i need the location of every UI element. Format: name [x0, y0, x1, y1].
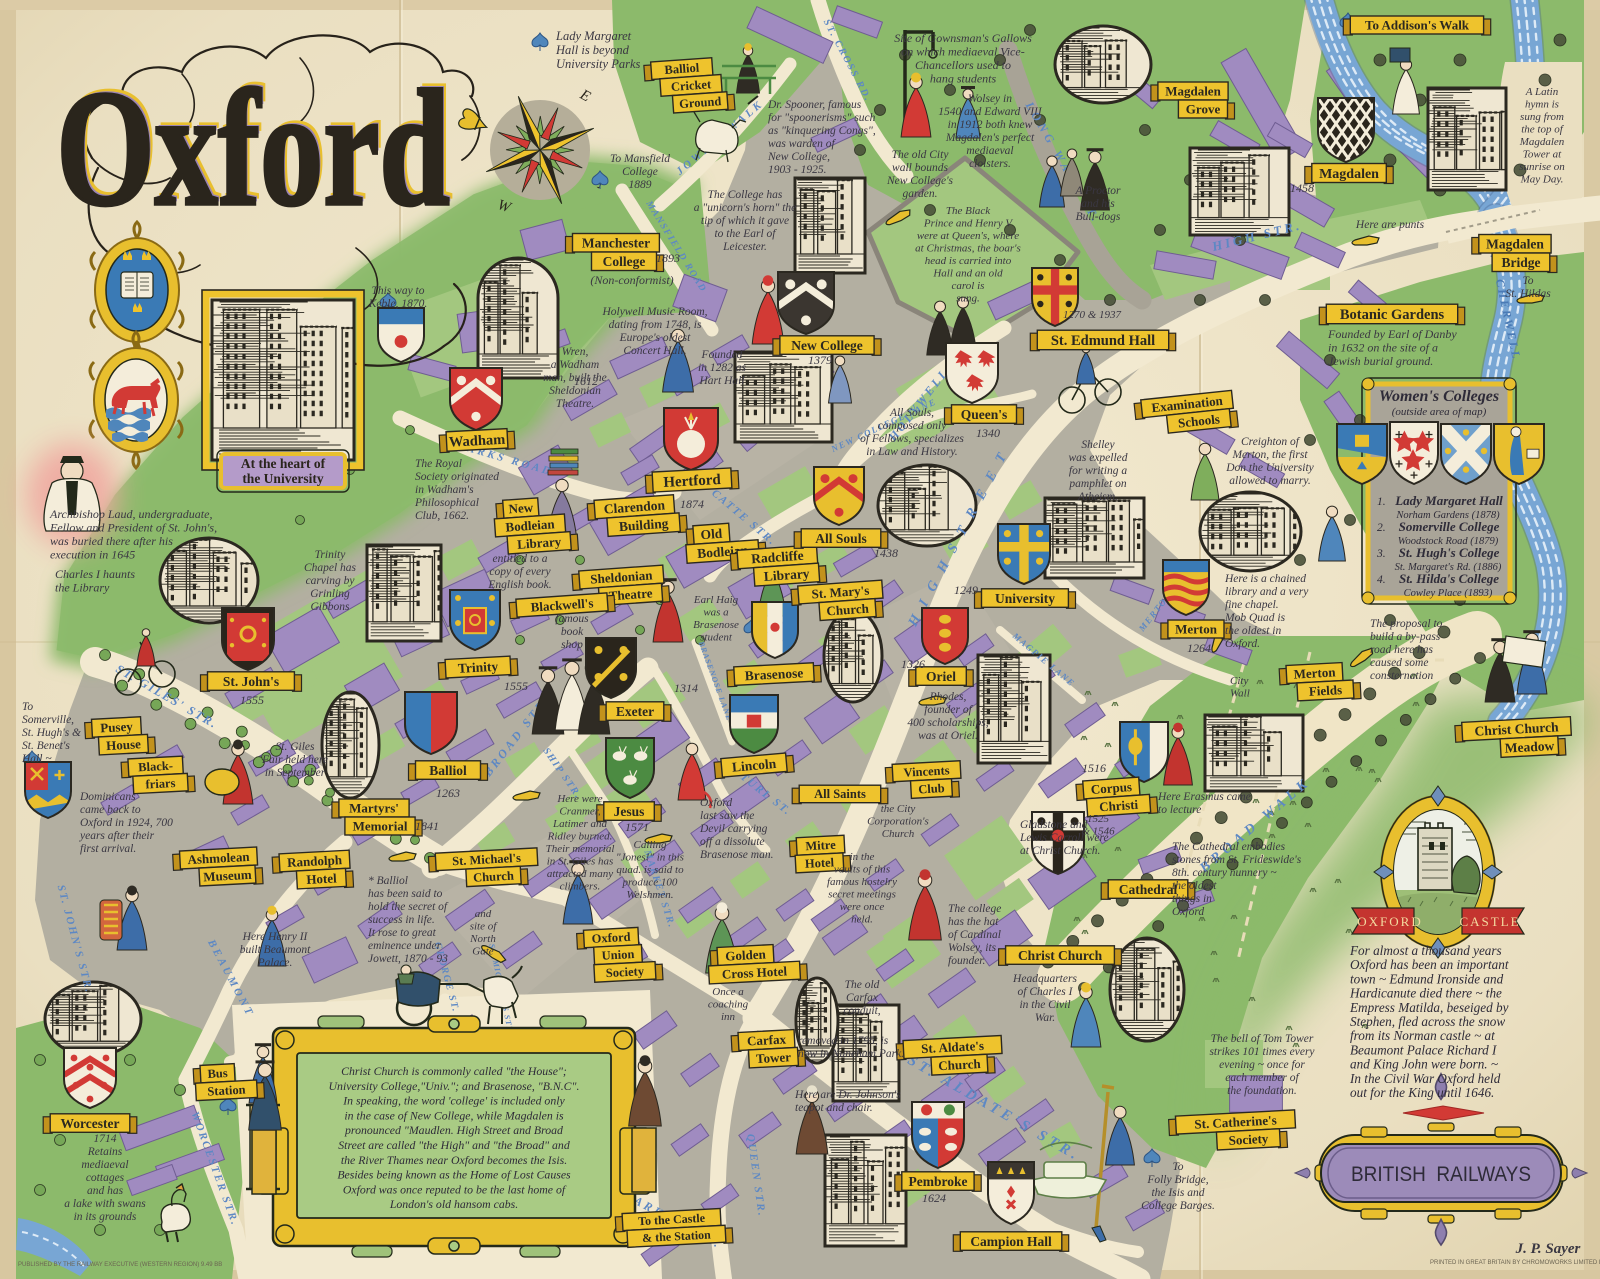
svg-text:Grove: Grove [1186, 102, 1221, 117]
svg-text:Merton: Merton [1293, 664, 1336, 681]
svg-text:4.: 4. [1377, 574, 1386, 586]
svg-text:Club: Club [918, 781, 945, 796]
svg-text:1326: 1326 [901, 657, 925, 671]
svg-text:CASTLE: CASTLE [1459, 914, 1520, 929]
svg-text:Bridge: Bridge [1502, 255, 1541, 270]
svg-text:Society: Society [605, 964, 645, 980]
svg-text:Station: Station [207, 1083, 246, 1099]
svg-text:Cowley Place (1893): Cowley Place (1893) [1404, 588, 1493, 599]
svg-text:Tower: Tower [756, 1049, 792, 1066]
svg-text:1841: 1841 [415, 819, 439, 833]
svg-text:1270 & 1937: 1270 & 1937 [1063, 309, 1122, 321]
svg-text:New: New [508, 500, 534, 517]
svg-text:1555: 1555 [504, 679, 528, 693]
svg-text:Magdalen: Magdalen [1486, 237, 1544, 252]
svg-text:All Souls: All Souls [815, 531, 866, 546]
svg-text:Merton: Merton [1175, 622, 1218, 637]
svg-text:Memorial: Memorial [353, 819, 408, 834]
svg-text:Jesus: Jesus [614, 804, 645, 819]
svg-text:3.: 3. [1376, 548, 1386, 560]
svg-text:CityWall: CityWall [1230, 675, 1250, 700]
svg-text:Balliol: Balliol [429, 763, 467, 778]
svg-text:Fields: Fields [1308, 682, 1342, 699]
svg-text:Magdalen: Magdalen [1319, 167, 1379, 182]
svg-text:OXFORD: OXFORD [1357, 914, 1422, 929]
svg-text:2.: 2. [1377, 522, 1386, 534]
svg-text:1624: 1624 [922, 1191, 946, 1205]
svg-text:(Non-conformist): (Non-conformist) [590, 273, 673, 287]
svg-text:Here are punts: Here are punts [1355, 219, 1425, 231]
svg-text:The oldCarfaxconduit,: The oldCarfaxconduit, [843, 979, 880, 1017]
svg-text:Christ Church is commonly call: Christ Church is commonly called "the Ho… [329, 1064, 580, 1211]
svg-text:University: University [995, 591, 1055, 606]
svg-text:St. Hilda's College: St. Hilda's College [1399, 571, 1499, 586]
svg-text:St. Edmund Hall: St. Edmund Hall [1051, 333, 1155, 349]
svg-text:This way toKeble, 1870.: This way toKeble, 1870. [368, 285, 427, 310]
svg-text:Queen's: Queen's [961, 407, 1008, 422]
svg-text:Oxford: Oxford [591, 930, 631, 946]
svg-text:PRINTED IN GREAT BRITAIN BY CH: PRINTED IN GREAT BRITAIN BY CHROMOWORKS … [1430, 1260, 1600, 1266]
svg-text:St. John's: St. John's [223, 674, 279, 689]
svg-text:entitled to acopy of everyEngl: entitled to acopy of everyEnglish book. [487, 553, 551, 591]
svg-text:Foundedin 1282 asHart Hall: Foundedin 1282 asHart Hall [698, 349, 746, 387]
svg-text:1438: 1438 [874, 546, 898, 560]
svg-text:House: House [106, 736, 142, 753]
svg-text:Museum: Museum [203, 867, 252, 885]
svg-text:Society: Society [1228, 1131, 1269, 1148]
svg-text:Oriel: Oriel [926, 669, 956, 684]
svg-text:Union: Union [601, 947, 634, 963]
svg-text:Cricket: Cricket [670, 77, 712, 94]
svg-text:Hotel: Hotel [306, 870, 337, 887]
svg-text:Worcester: Worcester [61, 1116, 120, 1131]
svg-text:Pusey: Pusey [100, 719, 134, 736]
svg-text:Lady MargaretHall is beyondUni: Lady MargaretHall is beyondUniversity Pa… [555, 29, 640, 71]
svg-text:The proposal tobuild a by-pass: The proposal tobuild a by-passroad here … [1370, 618, 1443, 682]
svg-text:Christ Church: Christ Church [1018, 948, 1103, 963]
svg-text:College: College [603, 254, 646, 269]
svg-text:Trinity: Trinity [458, 659, 499, 676]
svg-text:BRITISH RAILWAYS: BRITISH RAILWAYS [1351, 1163, 1531, 1186]
svg-text:Balliol: Balliol [664, 61, 700, 77]
svg-text:1263: 1263 [436, 786, 460, 800]
svg-text:Church: Church [473, 869, 514, 885]
svg-text:1340: 1340 [976, 426, 1000, 440]
svg-text:J. P. Sayer: J. P. Sayer [1515, 1241, 1581, 1257]
svg-text:1516: 1516 [1082, 761, 1106, 775]
svg-text:PUBLISHED BY THE RAILWAY EXECU: PUBLISHED BY THE RAILWAY EXECUTIVE (WEST… [18, 1262, 222, 1268]
svg-text:Botanic Gardens: Botanic Gardens [1340, 307, 1445, 323]
svg-text:Magdalen: Magdalen [1165, 84, 1221, 99]
svg-text:Black-: Black- [138, 759, 173, 775]
svg-text:Somerville College: Somerville College [1399, 519, 1500, 534]
svg-text:Mitre: Mitre [805, 838, 836, 854]
svg-text:Vincents: Vincents [903, 763, 950, 779]
svg-text:Brasenose: Brasenose [744, 665, 803, 683]
svg-text:1379: 1379 [808, 353, 832, 367]
svg-text:Hertford: Hertford [663, 472, 722, 491]
svg-text:Church: Church [826, 601, 870, 619]
svg-text:To Addison's Walk: To Addison's Walk [1365, 18, 1470, 33]
svg-text:Oxford: Oxford [56, 55, 449, 240]
svg-text:1893: 1893 [656, 251, 680, 265]
svg-text:Wadham: Wadham [448, 432, 505, 451]
svg-text:1.: 1. [1377, 496, 1386, 508]
svg-text:Randolph: Randolph [287, 852, 343, 870]
svg-text:(outside area of map): (outside area of map) [1392, 406, 1487, 418]
svg-text:Bus: Bus [207, 1066, 228, 1081]
svg-text:Campion Hall: Campion Hall [970, 1234, 1052, 1249]
svg-text:Martyrs': Martyrs' [349, 801, 399, 816]
svg-text:Old: Old [700, 526, 723, 543]
svg-text:At the heart of: At the heart of [241, 456, 326, 471]
svg-text:Golden: Golden [725, 946, 767, 963]
svg-text:friars: friars [145, 776, 176, 792]
svg-text:1458: 1458 [1290, 181, 1314, 195]
svg-text:Pembroke: Pembroke [909, 1174, 968, 1189]
svg-text:Women's Colleges: Women's Colleges [1379, 388, 1499, 405]
svg-text:Lady Margaret Hall: Lady Margaret Hall [1394, 493, 1503, 508]
svg-text:removed in 1795, isnow in Nune: removed in 1795, isnow in Nuneham Park. [798, 1035, 904, 1060]
svg-text:Exeter: Exeter [616, 704, 654, 719]
svg-text:1249: 1249 [954, 583, 978, 597]
svg-text:Meadow: Meadow [1504, 738, 1554, 756]
svg-text:1264: 1264 [1187, 641, 1211, 655]
svg-text:New College: New College [791, 338, 863, 353]
svg-text:Corpus: Corpus [1090, 779, 1132, 797]
svg-text:For almost a thousand yearsOxf: For almost a thousand yearsOxford has be… [1349, 943, 1509, 1100]
svg-text:Ground: Ground [679, 94, 722, 111]
svg-text:Library: Library [763, 566, 810, 584]
svg-text:1555: 1555 [240, 693, 264, 707]
svg-text:Church: Church [938, 1056, 982, 1073]
svg-text:Hotel: Hotel [805, 855, 835, 871]
svg-text:Library: Library [517, 534, 562, 552]
svg-text:1874: 1874 [680, 497, 704, 511]
svg-text:A Latinhymn issung fromthe top: A Latinhymn issung fromthe top ofMagdale… [1519, 86, 1566, 186]
svg-text:the University: the University [242, 471, 324, 486]
svg-text:A Proctorand hisBull-dogs: A Proctorand hisBull-dogs [1074, 185, 1121, 223]
svg-text:Cathedral: Cathedral [1119, 882, 1178, 897]
svg-text:1571: 1571 [625, 820, 649, 834]
svg-text:Christi: Christi [1099, 797, 1139, 815]
svg-text:Carfax: Carfax [747, 1031, 787, 1048]
svg-text:1314: 1314 [674, 681, 698, 695]
svg-text:St. Hugh's College: St. Hugh's College [1399, 545, 1500, 560]
svg-text:All Saints: All Saints [814, 787, 866, 801]
svg-text:Manchester: Manchester [582, 236, 650, 251]
